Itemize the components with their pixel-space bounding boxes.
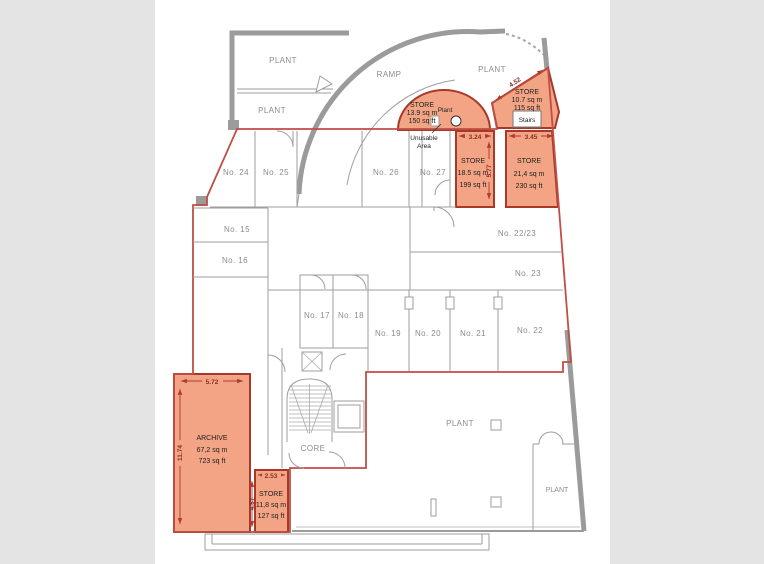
unusable-area-label-1: Unusable	[410, 135, 438, 142]
room-no15-label: No. 15	[224, 225, 250, 234]
room-no2223-label: No. 22/23	[498, 229, 536, 238]
plant-bottom-right-label: PLANT	[546, 487, 569, 494]
archive-sqm: 67,2 sq m	[197, 447, 228, 454]
column-2	[491, 497, 501, 507]
door-frame-3	[494, 297, 502, 309]
store-sw-sqm: 11,8 sq m	[256, 502, 286, 509]
unusable-area-label-2: Area	[417, 143, 431, 150]
floor-plan-page: Stairs Plant Unusable Area 3.24 3.45 5.7…	[0, 0, 764, 564]
store-right-sqft: 230 sq ft	[516, 183, 543, 190]
room-no19-label: No. 19	[375, 329, 401, 338]
store-ramp-sqm: 13.9 sq m	[407, 110, 438, 117]
room-no22-label: No. 22	[517, 326, 543, 335]
room-no20-label: No. 20	[415, 329, 441, 338]
plant-bottom-label: PLANT	[446, 419, 474, 428]
archive-sqft: 723 sq ft	[199, 458, 226, 465]
door-frame-1	[405, 297, 413, 309]
dim-text-1174: 11.74	[177, 445, 184, 461]
room-no18-label: No. 18	[338, 311, 364, 320]
room-no24-label: No. 24	[223, 168, 249, 177]
store-mid-sqm: 18.5 sq m	[458, 170, 489, 177]
room-no27-label: No. 27	[420, 168, 446, 177]
core-label: CORE	[301, 444, 326, 453]
ramp-label: RAMP	[377, 70, 402, 79]
room-no23-label: No. 23	[515, 269, 541, 278]
archive-name: ARCHIVE	[196, 435, 227, 442]
plant-top-lower-label: PLANT	[258, 106, 286, 115]
plant-point-circle	[451, 116, 461, 126]
store-sw-sqft: 127 sq ft	[258, 513, 285, 520]
store-right-name: STORE	[517, 158, 541, 165]
store-ne-name: STORE	[515, 89, 539, 96]
room-no16-label: No. 16	[222, 256, 248, 265]
lift-car-2	[338, 405, 360, 428]
column-1	[491, 420, 501, 430]
store-ne-sqft: 115 sq ft	[514, 105, 540, 112]
store-ramp-name: STORE	[410, 102, 434, 109]
store-right-room	[506, 131, 558, 207]
door-frame-2	[446, 297, 454, 309]
room-no26-label: No. 26	[373, 168, 399, 177]
dim-text-572: 5.72	[206, 379, 219, 386]
dim-text-345: 3.45	[525, 134, 538, 141]
plant-top-right-label: PLANT	[478, 65, 506, 74]
dim-text-324: 3.24	[469, 134, 482, 141]
store-right-sqm: 21,4 sq m	[514, 171, 545, 178]
dim-text-253: 2.53	[265, 473, 278, 480]
room-no25-label: No. 25	[263, 168, 289, 177]
floor-plan-drawing: Stairs Plant Unusable Area 3.24 3.45 5.7…	[0, 0, 764, 564]
store-ne-sqm: 10.7 sq m	[512, 97, 543, 104]
column-3	[431, 499, 436, 516]
store-mid-name: STORE	[461, 158, 485, 165]
plant-point-label: Plant	[438, 107, 453, 114]
room-no17-label: No. 17	[304, 311, 330, 320]
store-ramp-sqft: 150 sq ft	[409, 118, 436, 125]
store-mid-sqft: 199 sq ft	[460, 182, 487, 189]
room-no21-label: No. 21	[460, 329, 486, 338]
store-sw-name: STORE	[259, 491, 283, 498]
plant-top-upper-label: PLANT	[269, 56, 297, 65]
stairs-label: Stairs	[519, 117, 536, 124]
